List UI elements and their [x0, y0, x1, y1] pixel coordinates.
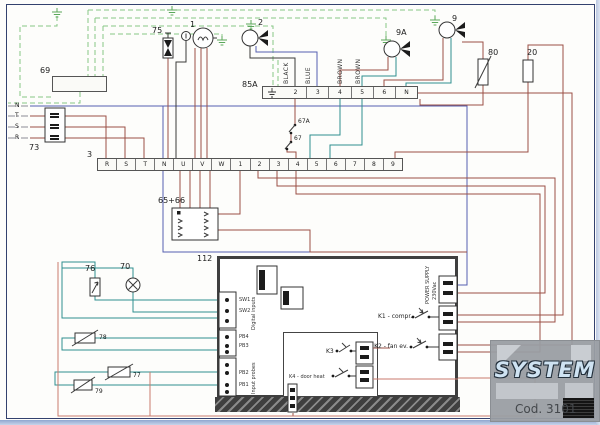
label-9: 9 [452, 14, 457, 23]
relay-label-k4: K4 - door heat [289, 374, 325, 380]
power-supply-connector-icon [439, 276, 457, 303]
board-module-icon [257, 266, 303, 309]
wire-label-blue: BLUE [305, 67, 312, 84]
relay-label-k2: K2 - fan ev. [374, 343, 408, 350]
pin-label-sw1: SW1 [239, 297, 250, 303]
label-strip85a: 85A [242, 80, 258, 89]
supply-label-r: R [15, 134, 19, 141]
wiring-diagram-page: RSTNUVW123456789 23456N [0, 0, 600, 425]
label-76: 76 [85, 264, 95, 273]
label-65-66: 65+66 [158, 196, 185, 205]
pin-label-pb1: PB1 [239, 382, 249, 388]
pin-label-sw2: SW2 [239, 308, 250, 314]
logo-bar [565, 383, 593, 399]
wire-label-brown-1: BROWN [337, 59, 344, 84]
label-70: 70 [120, 262, 130, 271]
label-73: 73 [29, 143, 39, 152]
k4-connector-icon [356, 366, 373, 388]
power-supply-label: POWER SUPPLY [425, 266, 431, 304]
k1-connector-icon [439, 306, 457, 330]
digital-inputs-label: Digital inputs [251, 297, 257, 330]
label-75: 75 [152, 26, 162, 35]
label-79: 79 [95, 388, 103, 395]
logo-code-text: Cod. 3101 [515, 402, 577, 416]
label-69: 69 [40, 66, 50, 75]
input-probes-label: Input probes [251, 362, 257, 394]
relay-label-k3: K3 [326, 348, 334, 355]
k2-relay-icon [410, 338, 439, 348]
label-strip3: 3 [87, 150, 92, 159]
wire-label-black: BLACK [283, 62, 290, 84]
input-probes-connector-1-icon [219, 330, 236, 356]
label-2: 2 [258, 18, 263, 27]
k4-relay-icon [332, 368, 356, 377]
label-9a: 9A [396, 28, 407, 37]
supply-label-n: N [15, 102, 20, 109]
board-bottom-connector-icon [288, 384, 297, 412]
label-78: 78 [99, 334, 107, 341]
pin-label-pb3: PB3 [239, 343, 249, 349]
pin-label-pb2: PB2 [239, 370, 249, 376]
label-112: 112 [197, 254, 212, 263]
k3-relay-icon [336, 343, 356, 352]
relay-label-k1: K1 - compr. [378, 313, 411, 320]
pin-label-pb4: PB4 [239, 334, 249, 340]
k1-relay-icon [412, 308, 439, 318]
label-1: 1 [190, 20, 195, 29]
label-20: 20 [527, 48, 537, 57]
input-probes-connector-2-icon [219, 358, 236, 396]
logo-brand-text: SYSTEM [491, 358, 599, 382]
supply-label-t: T [15, 112, 19, 119]
logo-bar [496, 383, 558, 399]
digital-inputs-connector-icon [219, 292, 236, 328]
label-67: 67 [294, 135, 302, 142]
ground-terminal-icon [268, 88, 276, 97]
label-77: 77 [133, 372, 141, 379]
system-logo: SYSTEM Cod. 3101 [490, 340, 600, 422]
label-67a: 67A [298, 118, 310, 125]
label-80: 80 [488, 48, 498, 57]
wire-label-brown-2: BROWN [355, 59, 362, 84]
power-supply-voltage: 230Vac [432, 282, 438, 300]
k3-connector-icon [356, 342, 373, 364]
k2-connector-icon [439, 334, 457, 360]
supply-label-s: S [15, 123, 19, 130]
